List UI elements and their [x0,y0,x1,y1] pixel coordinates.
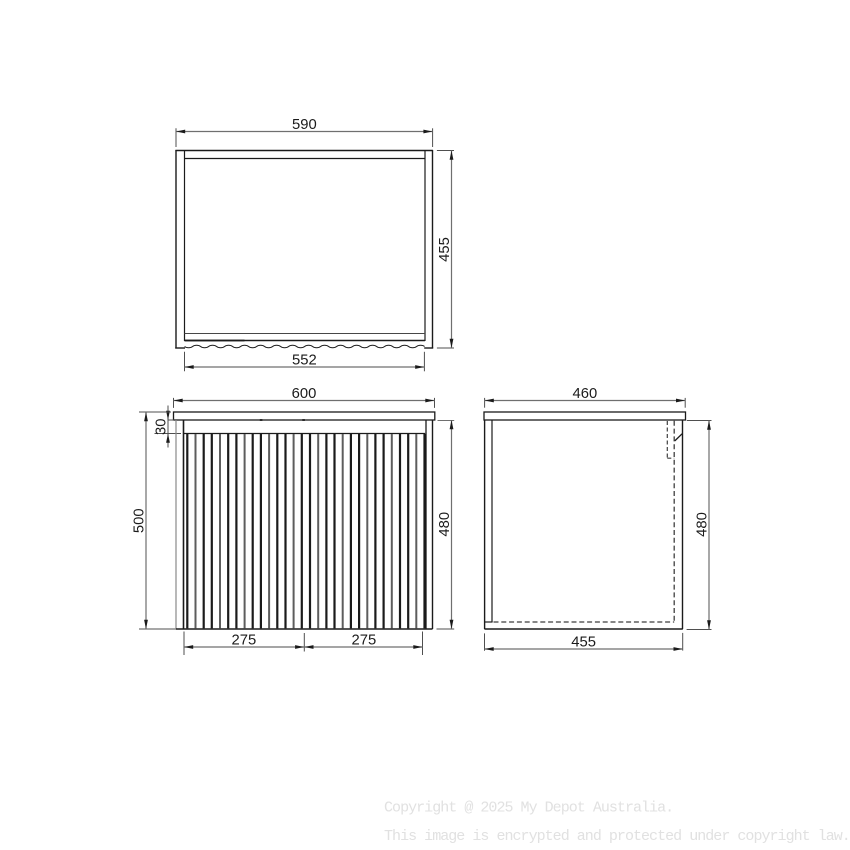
svg-text:Copyright @ 2025 My Depot Aust: Copyright @ 2025 My Depot Australia. [384,799,673,816]
svg-text:455: 455 [571,634,596,650]
svg-text:480: 480 [695,512,711,537]
svg-text:455: 455 [437,237,453,262]
svg-text:30: 30 [154,419,170,435]
svg-text:552: 552 [292,352,317,368]
svg-text:This image is encrypted and pr: This image is encrypted and protected un… [384,828,850,845]
svg-text:275: 275 [352,632,377,648]
svg-text:480: 480 [437,512,453,537]
svg-text:275: 275 [232,632,257,648]
svg-text:600: 600 [292,386,317,402]
svg-text:460: 460 [573,386,598,402]
svg-text:500: 500 [132,508,148,533]
svg-text:590: 590 [292,117,317,133]
